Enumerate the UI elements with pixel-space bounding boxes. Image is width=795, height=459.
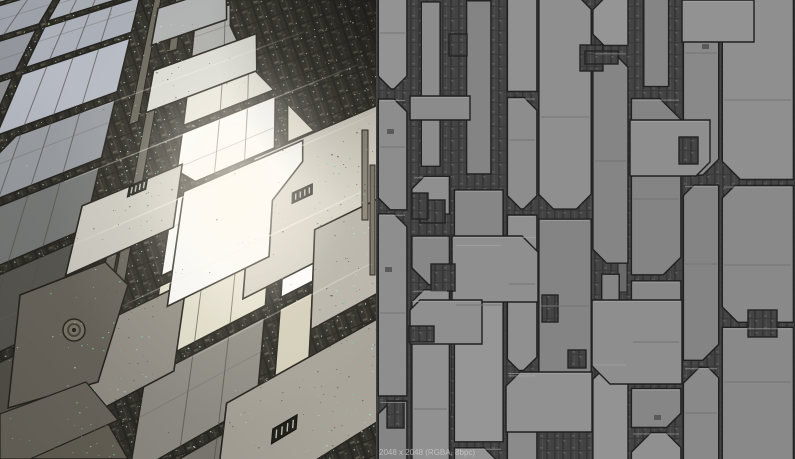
svg-text:2048 x 2048 (RGBA, 8bpc): 2048 x 2048 (RGBA, 8bpc) [379, 448, 475, 457]
